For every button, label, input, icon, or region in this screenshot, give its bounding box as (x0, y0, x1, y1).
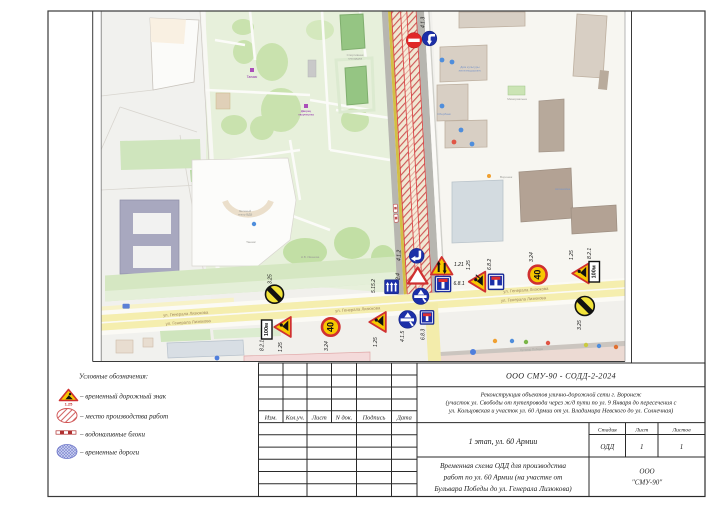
svg-text:1.25: 1.25 (278, 342, 284, 352)
svg-text:5.15.2: 5.15.2 (371, 279, 377, 293)
svg-text:творчества: творчества (298, 113, 314, 117)
svg-text:4.1.5: 4.1.5 (400, 331, 406, 342)
svg-text:Дата: Дата (396, 415, 412, 422)
svg-text:1.25: 1.25 (569, 250, 575, 260)
svg-text:ООО СМУ-90 - СОДД-2-2024: ООО СМУ-90 - СОДД-2-2024 (506, 372, 616, 381)
svg-text:8.2.1: 8.2.1 (587, 248, 593, 259)
svg-text:100м: 100м (592, 265, 598, 278)
svg-text:N док.: N док. (335, 415, 353, 422)
svg-text:Стадия: Стадия (598, 427, 617, 434)
svg-text:площадка: площадка (348, 57, 362, 61)
svg-text:"СМУ-90": "СМУ-90" (632, 479, 662, 487)
svg-text:1: 1 (680, 443, 684, 451)
svg-text:3.24: 3.24 (529, 252, 535, 262)
svg-text:Изм.: Изм. (264, 415, 277, 422)
svg-text:6.8.2: 6.8.2 (487, 259, 493, 270)
svg-text:1: 1 (640, 443, 644, 451)
svg-text:Мемориальна: Мемориальна (507, 97, 527, 101)
svg-text:Подпись: Подпись (362, 415, 386, 422)
svg-text:1 этап, ул. 60 Армии: 1 этап, ул. 60 Армии (469, 437, 538, 446)
svg-text:– место производства работ: – место производства работ (79, 413, 168, 421)
svg-text:40: 40 (326, 322, 336, 332)
svg-text:1.21: 1.21 (454, 262, 464, 268)
svg-text:железнодорожн.: железнодорожн. (459, 69, 482, 73)
svg-text:театр ВДВ: театр ВДВ (238, 213, 252, 217)
svg-text:Лист: Лист (311, 415, 327, 422)
svg-text:Н.В. Иванова: Н.В. Иванова (301, 255, 320, 259)
svg-text:Танаис: Танаис (247, 75, 258, 79)
svg-text:1.25: 1.25 (373, 337, 379, 347)
svg-text:Кол.уч.: Кол.уч. (285, 415, 305, 422)
svg-text:Условные обозначения:: Условные обозначения: (79, 373, 148, 381)
svg-text:Бульвара Победы до ул. Генерал: Бульвара Победы до ул. Генерала Лизюкова… (433, 484, 572, 493)
svg-text:Воронеж: Воронеж (500, 175, 512, 179)
svg-text:Сбербанк: Сбербанк (437, 112, 451, 116)
svg-text:работ по ул. 60 Армии (на учас: работ по ул. 60 Армии (на участке от (443, 473, 563, 482)
svg-text:8.2.1: 8.2.1 (260, 340, 266, 351)
svg-text:3.25: 3.25 (268, 274, 274, 284)
svg-text:– временный дорожный знак: – временный дорожный знак (79, 393, 167, 401)
svg-text:4.1.3: 4.1.3 (421, 17, 427, 28)
svg-text:1.25: 1.25 (466, 260, 472, 270)
svg-text:Временная схема ОДД для произв: Временная схема ОДД для производства (440, 461, 566, 470)
svg-text:Автомойка: Автомойка (555, 187, 570, 191)
svg-text:Лист: Лист (634, 428, 648, 434)
svg-text:– временные дороги: – временные дороги (79, 449, 140, 457)
svg-text:Листов: Листов (671, 428, 691, 434)
svg-text:3.25: 3.25 (577, 320, 583, 330)
svg-text:(участок ул. Свободы от путепр: (участок ул. Свободы от путепровода чере… (446, 400, 677, 407)
svg-text:Танаис: Танаис (246, 240, 256, 244)
svg-text:40: 40 (533, 270, 543, 280)
svg-text:Реконструкция объектов улично-: Реконструкция объектов улично-дорожной с… (480, 392, 642, 399)
svg-text:6.8.3: 6.8.3 (421, 329, 427, 340)
svg-text:– водоналивные блоки: – водоналивные блоки (79, 431, 146, 439)
svg-text:ул. Кольцовская и участок ул.: ул. Кольцовская и участок ул. 60 Армии о… (448, 408, 673, 415)
svg-text:6.8.1: 6.8.1 (454, 281, 465, 287)
svg-text:3.24: 3.24 (324, 341, 330, 351)
svg-text:100м: 100м (264, 323, 270, 336)
svg-text:4.1.2: 4.1.2 (397, 250, 403, 261)
svg-text:1.25: 1.25 (65, 402, 74, 407)
svg-text:ООО: ООО (639, 468, 654, 476)
svg-text:ОДД: ОДД (600, 443, 614, 451)
